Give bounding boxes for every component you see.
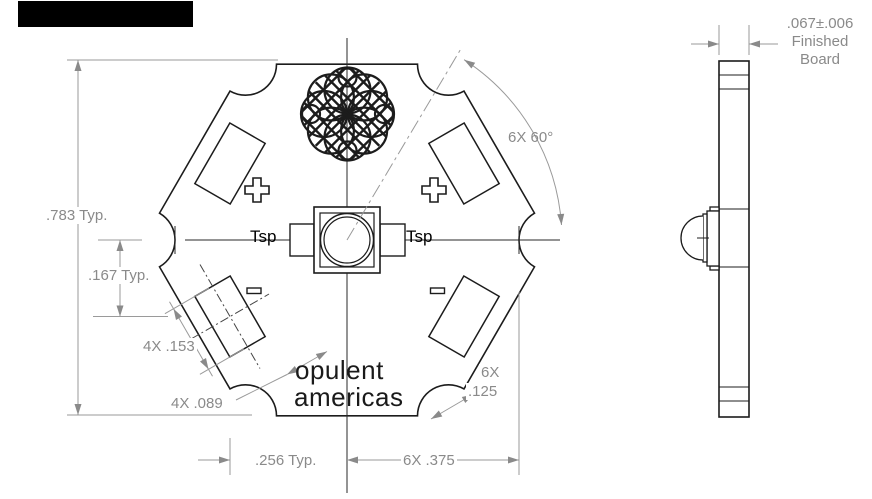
thickness-word-2: Board	[777, 51, 863, 69]
logo-line-1: opulent	[295, 357, 384, 383]
dim-offset-label: .167 Typ.	[86, 267, 151, 284]
dim-pad-length-label: 4X .153	[141, 338, 197, 355]
front-view	[67, 38, 564, 493]
minus-symbol-left	[247, 288, 261, 294]
led-tab-left	[290, 224, 314, 256]
dim-pad-width-label: 4X .089	[171, 395, 223, 412]
drawing-canvas	[0, 0, 872, 499]
tsp-label-right: Tsp	[406, 227, 432, 247]
thickness-label-block: .067±.006 Finished Board	[777, 15, 863, 69]
technical-drawing-page: .783 Typ. .167 Typ. 4X .153 4X .089 .256…	[0, 0, 872, 499]
led-profile	[681, 207, 719, 270]
dim-angle-label: 6X 60°	[508, 129, 553, 146]
dim-height-label: .783 Typ.	[44, 207, 109, 224]
dim-spacing-label: .256 Typ.	[255, 452, 316, 469]
dim-pitch-label: 6X .375	[401, 452, 457, 469]
minus-symbol-right	[431, 288, 445, 294]
dim-notch-count-label: 6X	[479, 364, 501, 381]
thickness-value: .067±.006	[777, 15, 863, 33]
led-tab-right	[380, 224, 405, 256]
logo-line-2: americas	[294, 384, 403, 410]
board-profile	[719, 61, 749, 417]
thickness-dimension	[691, 25, 778, 55]
side-view	[681, 25, 778, 417]
dim-notch-radius-label: .125	[466, 383, 499, 400]
tsp-label-left: Tsp	[250, 227, 276, 247]
thickness-word-1: Finished	[777, 33, 863, 51]
